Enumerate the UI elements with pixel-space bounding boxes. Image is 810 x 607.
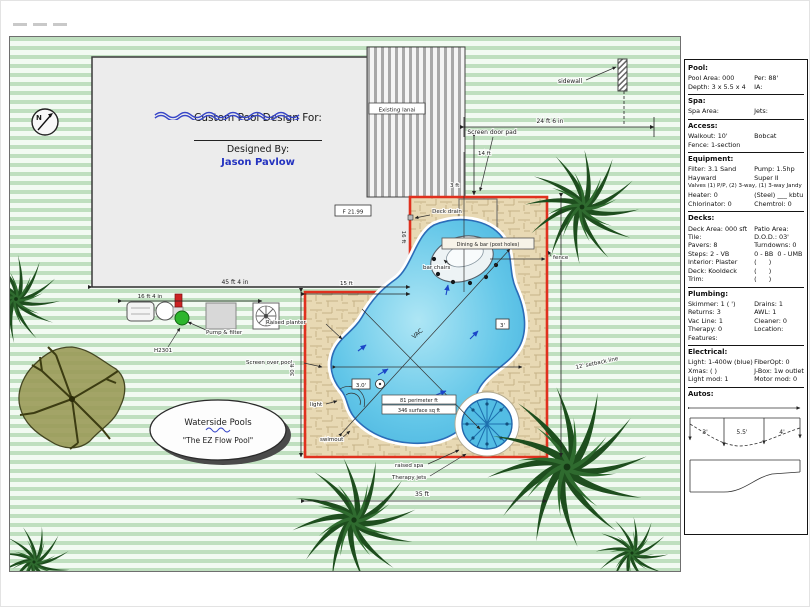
existing-lanai-label: Existing lanai: [379, 108, 416, 114]
dim-door-offset: 3 ft: [450, 183, 460, 189]
north-compass: N: [32, 109, 58, 135]
spec-section-spa: Spa: Spa Area:Jets:: [688, 95, 804, 120]
sidewall-post: [618, 59, 627, 91]
spec-value: Walkout: 10': [688, 132, 754, 140]
spec-value: FiberOpt: 0: [754, 358, 804, 366]
spa: [455, 392, 519, 456]
spec-value: Light mod: 1: [688, 375, 754, 383]
spec-value: Drains: 1: [754, 300, 804, 308]
spec-value: Trim:: [688, 275, 754, 283]
spec-value: Skimmer: 1 ( '): [688, 300, 754, 308]
dim-deck-bottom: 35 ft: [415, 491, 430, 498]
swimout-label: swimout: [320, 437, 344, 443]
spec-value: AWL: 1: [754, 308, 804, 316]
section-header: Access:: [688, 122, 804, 131]
spec-value: Xmas: ( ): [688, 367, 754, 375]
profile-shallow-depth: 3': [702, 429, 708, 436]
profile-end-depth: 4': [779, 429, 785, 436]
designed-by-label: Designed By:: [152, 144, 364, 155]
palm-tree: [10, 511, 85, 572]
perimeter-note-label: 81 perimeter ft: [400, 398, 438, 404]
site-plan: Existing lanai sidewall 24 ft 6 in Scree…: [9, 36, 681, 572]
spec-value: Depth: 3 x 5.5 x 4: [688, 83, 754, 91]
spec-value: Motor mod: 0: [754, 375, 804, 383]
spec-value: IA:: [754, 83, 804, 91]
spec-value: Interior: Plaster: [688, 258, 754, 266]
spec-value: Per: 88': [754, 74, 804, 82]
spec-value: ( ): [754, 267, 804, 275]
logo-tagline: "The EZ Flow Pool": [183, 436, 254, 445]
north-label: N: [36, 114, 42, 122]
floor-elevation-label: F 21.99: [343, 210, 364, 216]
section-header: Spa:: [688, 97, 804, 106]
spec-value: Fence: 1-section: [688, 141, 754, 149]
logo-company: Waterside Pools: [184, 418, 252, 428]
spec-value: Chlorinator: 0: [688, 200, 754, 208]
logo-oval: Waterside Pools "The EZ Flow Pool": [150, 400, 291, 465]
spec-value: Patio Area:: [754, 225, 804, 233]
spec-value: Heater: 0: [688, 191, 754, 199]
equipment-slab: [206, 303, 236, 329]
spec-value: Spa Area:: [688, 107, 754, 115]
spec-value: Pump: 1.5hp: [754, 165, 804, 173]
spec-value: Steps: 2 - VB: [688, 250, 754, 258]
pool-design-sheet: Existing lanai sidewall 24 ft 6 in Scree…: [0, 0, 810, 607]
spec-panel: Pool: Pool Area: 000Per: 88' Depth: 3 x …: [684, 59, 808, 535]
spec-value: Deck: Kooldeck: [688, 267, 754, 275]
light-label: light: [310, 402, 323, 408]
screen-over-pool-label: Screen over pool: [246, 360, 293, 366]
section-header: Pool:: [688, 64, 804, 73]
section-header: Plumbing:: [688, 290, 804, 299]
dim-house-side: 16 ft: [400, 231, 406, 245]
dim-house-width: 45 ft 4 in: [221, 279, 248, 286]
spec-section-pool: Pool: Pool Area: 000Per: 88' Depth: 3 x …: [688, 62, 804, 95]
surface-note-label: 346 surface sq ft: [398, 408, 440, 414]
spec-value: Jets:: [754, 107, 804, 115]
screen-door-pad-label: Screen door pad: [467, 129, 517, 136]
section-header: Autos:: [688, 390, 804, 399]
spec-section-electrical: Electrical: Light: 1-400w (blue)FiberOpt…: [688, 346, 804, 388]
therapy-jets-label: Therapy jets: [391, 475, 426, 481]
spec-value: Pavers: 8: [688, 241, 754, 249]
section-header: Decks:: [688, 214, 804, 223]
dining-table-label: Dining & bar (post holes): [457, 242, 520, 248]
spec-value: (Steel) ___ kbtu: [754, 191, 804, 199]
spec-value: Pool Area: 000: [688, 74, 754, 82]
depth-profile-diagram: 3' 5.5' 4': [688, 400, 802, 500]
valve-unit: [175, 294, 182, 307]
existing-lanai: [367, 47, 465, 197]
spec-value: Features:: [688, 334, 754, 342]
spec-value: [754, 334, 804, 342]
sidewall-label: sidewall: [558, 78, 583, 85]
spec-section-access: Access: Walkout: 10'Bobcat Fence: 1-sect…: [688, 120, 804, 153]
dim-deck-left: 30 ft: [290, 363, 296, 377]
dim-top-run: 24 ft 6 in: [536, 118, 563, 125]
design-block: Custom Pool Design For: Designed By: Jas…: [152, 109, 364, 168]
chlorinator: [175, 311, 189, 325]
spec-value: ( ): [754, 258, 804, 266]
spec-value: Cleaner: 0: [754, 317, 804, 325]
spec-value: Location:: [754, 325, 804, 333]
raised-planter-label: Raised planter: [266, 320, 307, 326]
spec-value: ( ): [754, 275, 804, 283]
spec-value: Light: 1-400w (blue): [688, 358, 754, 366]
spec-value: 0 - BB 0 - UMB: [754, 250, 804, 258]
dim-door-height: 14 ft: [478, 151, 492, 157]
section-header: Electrical:: [688, 348, 804, 357]
shallow-marker-label: 3': [500, 323, 505, 329]
spec-section-equipment: Equipment: Filter: 3.1 SandPump: 1.5hp H…: [688, 153, 804, 212]
spec-value: Vac Line: 1: [688, 317, 754, 325]
palm-tree: [10, 255, 60, 343]
depth-marker-label: 3.0': [356, 383, 366, 389]
spec-value: [754, 141, 804, 149]
spec-section-profile: Autos:: [688, 388, 804, 506]
spec-value: Deck Area: 000 sft: [688, 225, 754, 233]
dim-deck-top: 15 ft: [340, 281, 354, 287]
spec-section-plumbing: Plumbing: Skimmer: 1 ( ')Drains: 1 Retur…: [688, 288, 804, 347]
spec-value: Turndowns: 0: [754, 241, 804, 249]
spec-valves-line: Valves (1) P/P, (2) 3-way, (1) 3-way Jan…: [688, 183, 804, 190]
wave-divider-icon: [152, 111, 302, 120]
dim-equip-run: 16 ft 4 in: [138, 294, 163, 300]
deck-drain-label: Deck drain: [432, 209, 462, 215]
divider: [194, 140, 322, 141]
pump-filter-label: Pump & filter: [206, 330, 243, 336]
sheet-corner-marks: [13, 11, 93, 31]
spec-value: Filter: 3.1 Sand: [688, 165, 754, 173]
house-footprint: [92, 57, 410, 287]
spec-value: J-Box: 1w outlet: [754, 367, 804, 375]
spec-section-decks: Decks: Deck Area: 000 sftPatio Area: Til…: [688, 212, 804, 287]
fence-label: fence: [553, 255, 569, 261]
pump: [156, 302, 174, 320]
oak-tree: [19, 347, 125, 449]
spec-value: Super II: [754, 174, 804, 182]
section-header: Equipment:: [688, 155, 804, 164]
heater-model-label: H2301: [154, 348, 172, 354]
spec-value: D.O.D.: 03': [754, 233, 804, 241]
setback-line-label: 12' setback line: [575, 356, 619, 371]
designer-name: Jason Pavlow: [152, 157, 364, 168]
bar-chairs-label: bar chairs: [423, 265, 451, 271]
pool-light-dot: [379, 383, 381, 385]
spec-value: Hayward: [688, 174, 754, 182]
spec-value: Returns: 3: [688, 308, 754, 316]
spec-value: Therapy: 0: [688, 325, 754, 333]
raised-spa-label: raised spa: [395, 463, 423, 469]
profile-deep-depth: 5.5': [736, 429, 748, 436]
spec-value: Tile:: [688, 233, 754, 241]
filter-tank: [127, 302, 154, 321]
spec-value: Chemtrol: 0: [754, 200, 804, 208]
deck-drain: [408, 215, 413, 220]
spec-value: Bobcat: [754, 132, 804, 140]
